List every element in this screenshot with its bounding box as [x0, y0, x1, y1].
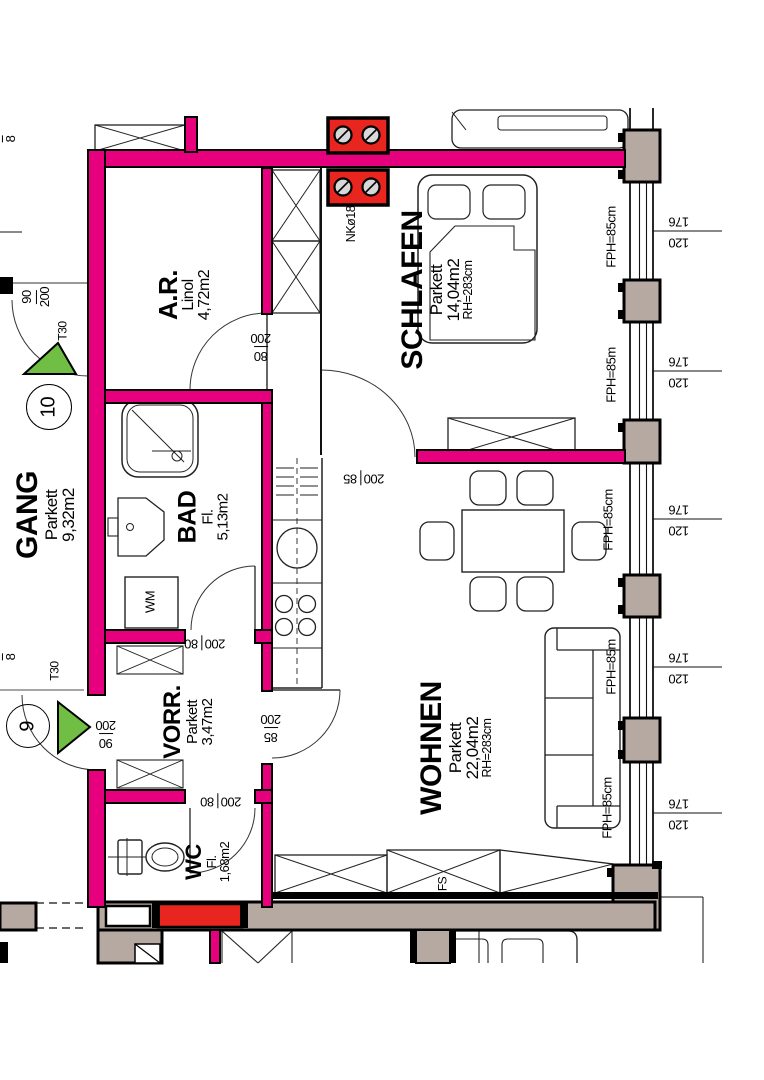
room-label-ar: A.R. Linol 4,72m2	[155, 270, 213, 320]
window-height: 120	[669, 235, 689, 250]
washing-machine-label: WM	[144, 591, 159, 613]
wall-stub-bottom	[210, 930, 220, 963]
stove-burners	[276, 596, 316, 636]
door-10-type: T30	[56, 321, 69, 340]
window-fph-label: FPH=85cm	[602, 489, 617, 550]
window-width: 176	[669, 796, 689, 811]
door-schlafen-arc	[321, 370, 415, 457]
shelf-vorr-lower	[117, 760, 183, 788]
edge-dim-top: 2 8	[0, 136, 18, 143]
left-wall-fragment	[0, 903, 36, 930]
window-fph-label: FPH=85cm	[601, 777, 616, 838]
bed-upper-apartment	[452, 110, 628, 148]
shelf-vorr-upper	[117, 646, 183, 674]
window-width: 176	[669, 214, 689, 229]
plan-linework	[0, 0, 764, 1080]
window-height: 120	[669, 671, 689, 686]
wall-niche	[106, 906, 150, 926]
window-height: 120	[669, 817, 689, 832]
room-label-bad: BAD Fl. 5,13m2	[176, 491, 231, 544]
window-height: 120	[669, 375, 689, 390]
door-ar-size: 80 200	[251, 331, 271, 363]
room-label-vorr: VORR. Parkett 3,47m2	[161, 685, 215, 759]
window-width: 176	[669, 354, 689, 369]
room-label-gang: GANG Parkett 9,32m2	[13, 471, 77, 559]
wall-schlafen-south	[417, 450, 625, 463]
entrance-door-red	[158, 904, 242, 927]
floor-plan: GANG Parkett 9,32m2 A.R. Linol 4,72m2 SC…	[0, 0, 764, 1080]
wardrobe-lower-apartment	[222, 931, 292, 963]
shower	[122, 400, 198, 477]
door-vorr-size: 85 200	[261, 712, 281, 744]
wall-ar-south	[105, 390, 272, 403]
marker-door-9	[58, 702, 90, 753]
wall-wc-north-left	[105, 790, 185, 803]
wall-west-upper	[88, 150, 105, 695]
room-label-wc: WC Fl. 1,68m2	[183, 842, 231, 882]
door-10-number: 10	[26, 384, 72, 430]
wash-basin	[108, 498, 164, 556]
door-wc-size: 200 80	[201, 794, 242, 809]
wall-bad-south-left	[105, 630, 185, 643]
door-10-wall-cap	[0, 277, 13, 294]
toilet	[108, 838, 184, 876]
door-vorr-arc	[272, 690, 340, 758]
wardrobe-top	[95, 125, 185, 151]
window-width: 176	[669, 650, 689, 665]
edge-dim-mid: 2 8	[0, 654, 18, 661]
wardrobe-passage	[272, 170, 320, 313]
marker-door-10	[24, 343, 76, 374]
window-fph-label: FPH=85m	[605, 347, 620, 402]
window-fph-label: FPH=85m	[605, 639, 620, 694]
fs-wardrobe-label: FS	[436, 877, 449, 891]
lower-apartment-wall	[410, 930, 456, 963]
wall-bad-east	[262, 403, 272, 631]
wall-west-lower	[88, 770, 105, 907]
door-schlafen-size: 200 85	[344, 471, 385, 486]
window-fph-label: FPH=85cm	[605, 206, 620, 267]
wall-vorr-east-upper	[262, 643, 272, 691]
door-9-size: 90 200	[96, 718, 116, 750]
bed-lower-apartment	[437, 931, 577, 963]
window-width: 176	[669, 502, 689, 517]
door-9-number: 9	[6, 704, 50, 748]
south-wall-inner-face	[268, 892, 658, 899]
door-9-type: T30	[48, 661, 61, 680]
dining-table	[420, 471, 606, 611]
shaft-label: NKø18	[344, 206, 358, 242]
wall-bad-south-right	[255, 630, 272, 643]
wall-stub-top	[185, 117, 197, 152]
wall-vorr-east-lower	[262, 764, 272, 907]
wall-ar-east	[262, 168, 272, 314]
door-10-size: 90 200	[20, 287, 52, 307]
door-bad-arc	[191, 566, 255, 630]
magenta-walls	[88, 117, 625, 963]
kitchen-counter	[272, 458, 322, 688]
door-bad-size: 200 80	[185, 636, 226, 651]
window-height: 120	[669, 523, 689, 538]
room-label-schlafen: SCHLAFEN Parkett 14,04m2 RH=283cm	[398, 210, 475, 369]
room-label-wohnen: WOHNEN Parkett 22,04m2 RH=283cm	[417, 681, 494, 815]
wall-wc-north-right	[255, 790, 272, 803]
